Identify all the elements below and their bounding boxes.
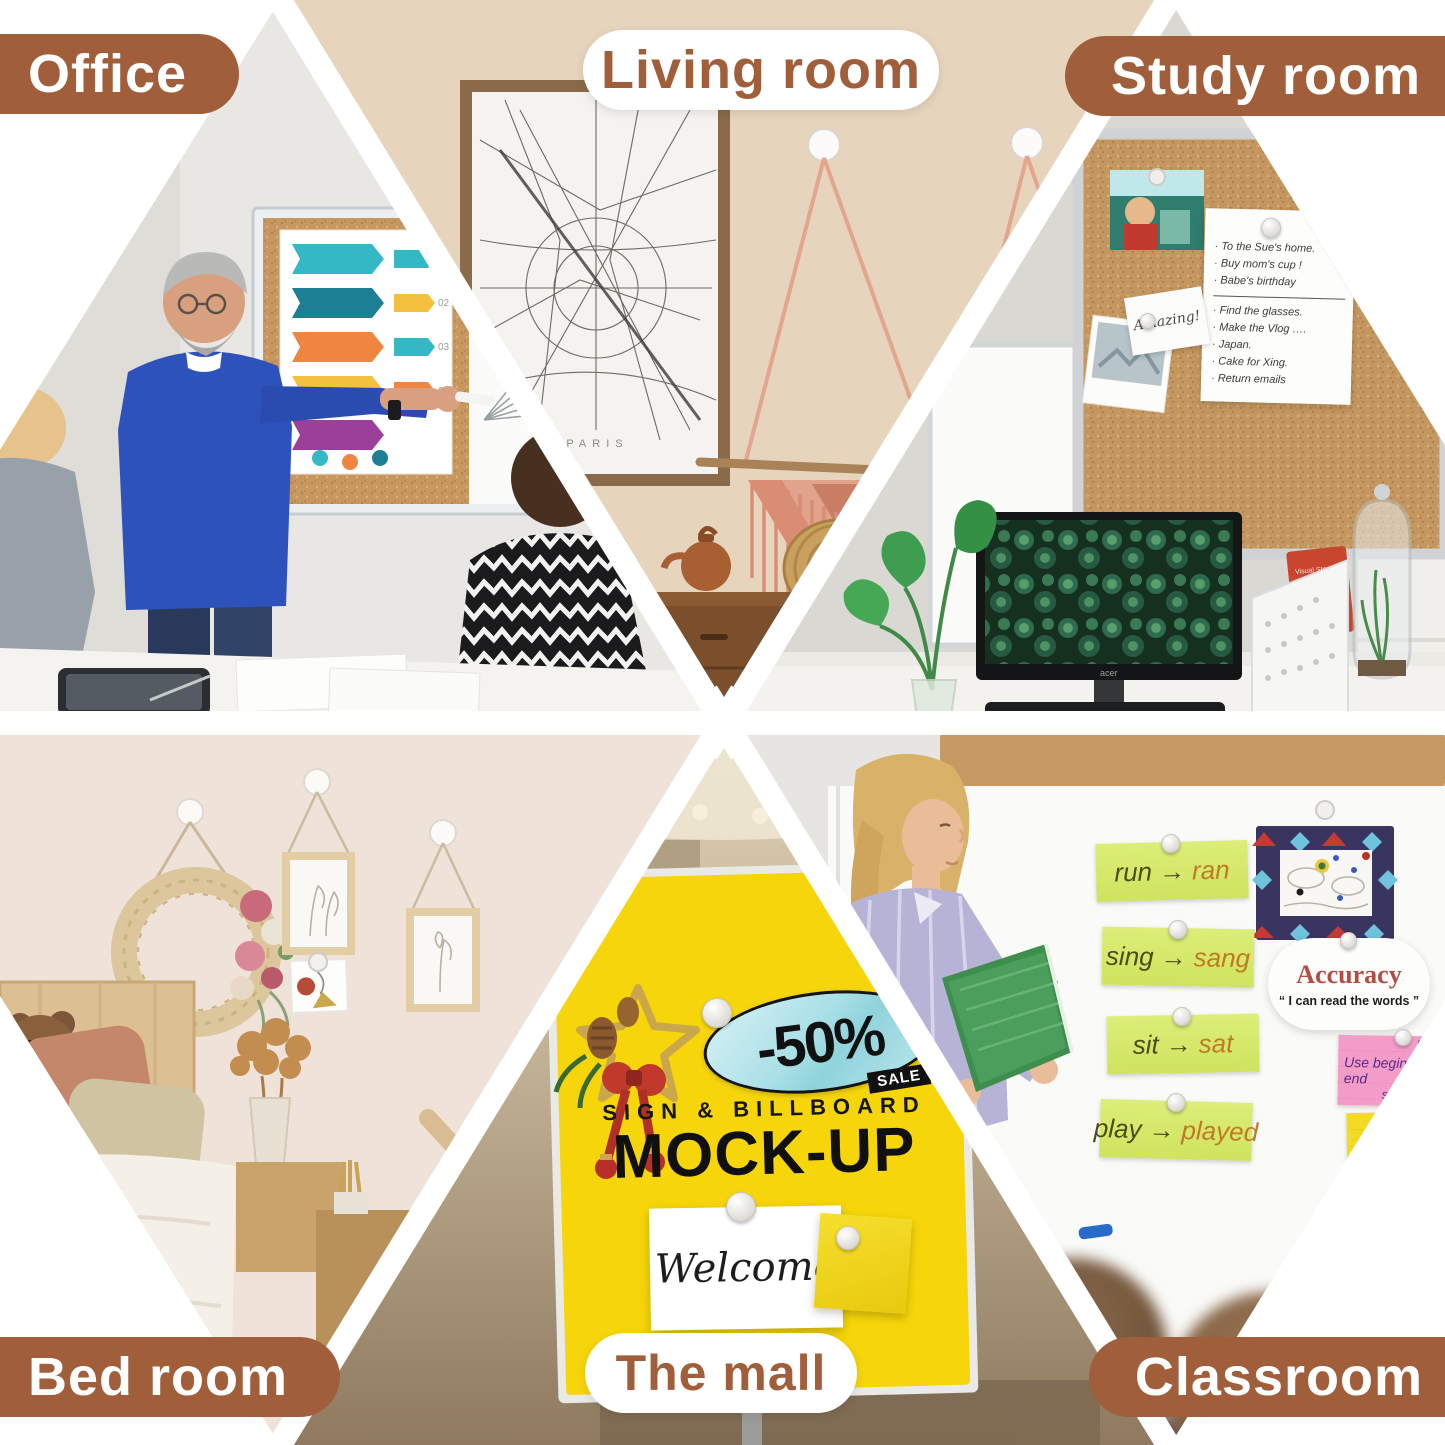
word-card: run → ran — [1095, 840, 1248, 902]
pink-strategy-card: blanket Use beginning and end sounds. — [1337, 1035, 1445, 1107]
label-classroom: Classroom — [1089, 1337, 1445, 1417]
welcome-magnet — [726, 1192, 756, 1222]
todo-line: · Return emails — [1211, 370, 1343, 390]
pinned-photo — [1110, 169, 1204, 250]
sign-magnet — [1340, 932, 1357, 949]
todo-line: · Babe's birthday — [1213, 272, 1345, 292]
wall-hook — [1011, 127, 1043, 159]
label-bed-room: Bed room — [0, 1337, 340, 1417]
glass-terrarium — [1354, 484, 1410, 678]
note-magnet — [1261, 218, 1282, 239]
wood-strip — [940, 732, 1445, 788]
drawing-magnet — [1316, 801, 1334, 819]
card-magnet — [1438, 1104, 1445, 1121]
word-card: sing → sang — [1102, 927, 1255, 988]
label-living-room: Living room — [583, 30, 939, 110]
label-the-mall: The mall — [585, 1333, 857, 1413]
sign-magnet — [702, 998, 732, 1028]
label-study-room: Study room — [1065, 36, 1445, 116]
watch — [388, 400, 401, 420]
wall-hook — [304, 769, 330, 795]
amazing-card: Amazing! — [1124, 286, 1210, 355]
welcome-card: Welcome — [649, 1205, 843, 1330]
word-card: sit → sat — [1107, 1014, 1260, 1075]
card-magnet — [1166, 1093, 1185, 1112]
poster-number: 03 — [438, 342, 450, 353]
sign-title: MOCK-UP — [574, 1113, 954, 1194]
yellow-strategy-card: Chunking imitate — [1346, 1111, 1445, 1189]
infographic-poster: 01 02 03 04 — [280, 230, 452, 474]
accuracy-quote: “ I can read the words ” — [1279, 994, 1419, 1008]
poster-number: 02 — [438, 298, 450, 309]
card-magnet — [309, 953, 327, 971]
discount-text: -50% — [753, 1001, 888, 1083]
card-magnet — [1161, 834, 1180, 853]
accuracy-sign: Accuracy “ I can read the words ” — [1268, 938, 1430, 1030]
note-divider — [1213, 295, 1345, 299]
wall-hook — [430, 820, 456, 846]
sticky-magnet — [836, 1226, 860, 1250]
accuracy-title: Accuracy — [1296, 960, 1401, 990]
pinned-todo-note: · To the Sue's home. · Buy mom's cup ! ·… — [1200, 208, 1355, 405]
word-card: play → played — [1099, 1099, 1252, 1161]
card-magnet — [1168, 920, 1187, 939]
card-magnet — [1172, 1007, 1191, 1026]
monitor-brand: acer — [1100, 668, 1118, 678]
yellow-sticky-note — [814, 1213, 912, 1314]
label-office: Office — [0, 34, 239, 114]
wall-hook — [177, 799, 203, 825]
product-collage: 01 02 03 04 — [0, 0, 1445, 1445]
wall-hook — [808, 129, 840, 161]
